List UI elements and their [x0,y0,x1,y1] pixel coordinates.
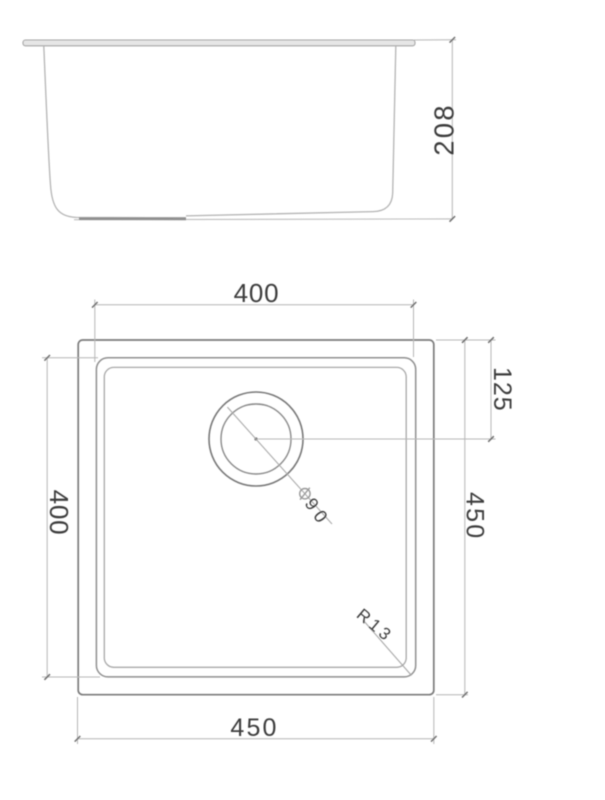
svg-text:90: 90 [301,494,335,530]
svg-text:450: 450 [461,492,489,540]
svg-text:208: 208 [428,103,459,155]
svg-text:450: 450 [230,714,278,742]
svg-text:R13: R13 [353,605,397,646]
svg-text:400: 400 [234,278,280,308]
svg-text:400: 400 [44,490,74,536]
svg-text:125: 125 [488,367,516,412]
